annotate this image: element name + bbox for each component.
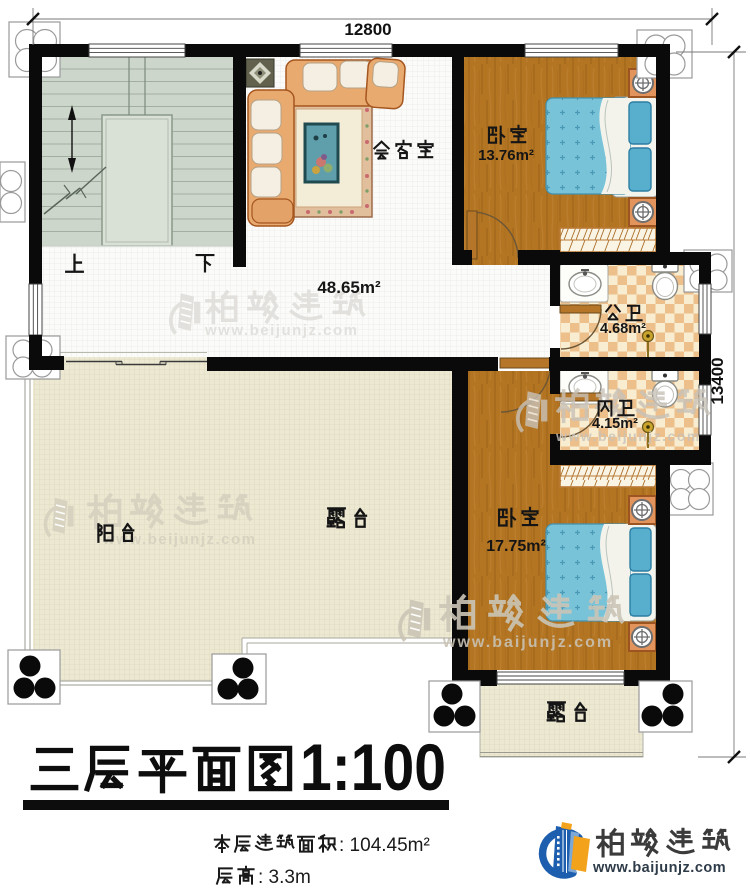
svg-text:13400: 13400 [708,357,727,404]
svg-text:www.baijunjz.com: www.baijunjz.com [592,860,726,876]
svg-text:4.15m²: 4.15m² [592,416,638,432]
svg-text:13.76m²: 13.76m² [478,147,534,164]
svg-text:www.baijunjz.com: www.baijunjz.com [442,634,613,651]
svg-text:17.75m²: 17.75m² [486,538,546,555]
svg-text:12800: 12800 [344,20,391,39]
svg-text:4.68m²: 4.68m² [600,321,646,337]
svg-text:1:100: 1:100 [300,730,446,804]
svg-text:: 104.45m²: : 104.45m² [339,835,430,856]
svg-text:: 3.3m: : 3.3m [258,867,311,888]
svg-text:www.beijunjz.com: www.beijunjz.com [204,322,358,339]
svg-text:48.65m²: 48.65m² [317,278,381,297]
